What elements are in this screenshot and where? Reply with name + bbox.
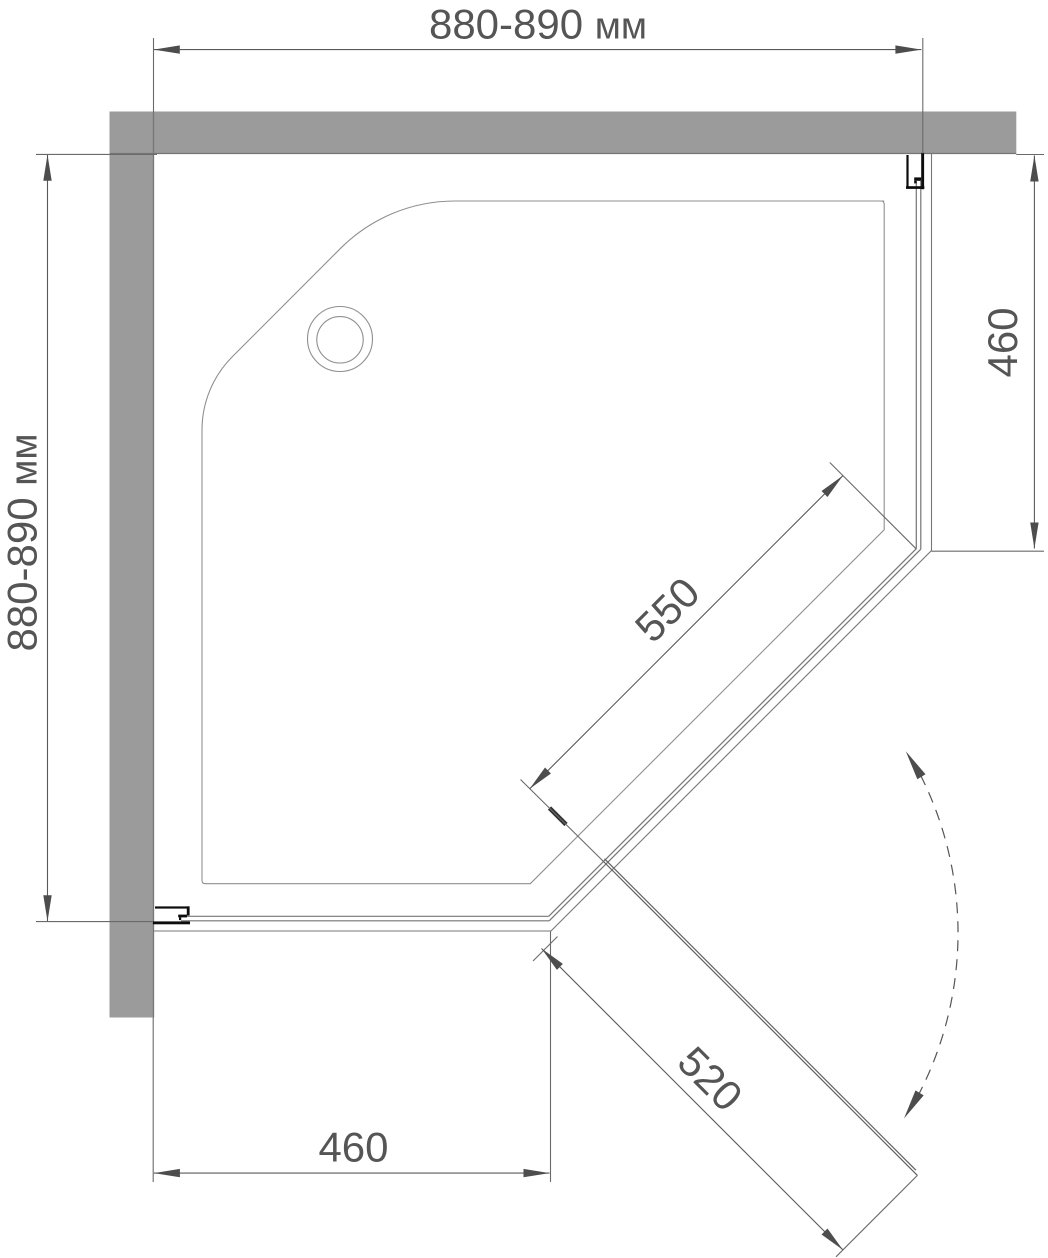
svg-text:460: 460 xyxy=(318,1123,388,1170)
svg-text:460: 460 xyxy=(979,307,1026,377)
svg-text:880-890 мм: 880-890 мм xyxy=(429,1,647,48)
svg-text:880-890 мм: 880-890 мм xyxy=(0,433,46,651)
